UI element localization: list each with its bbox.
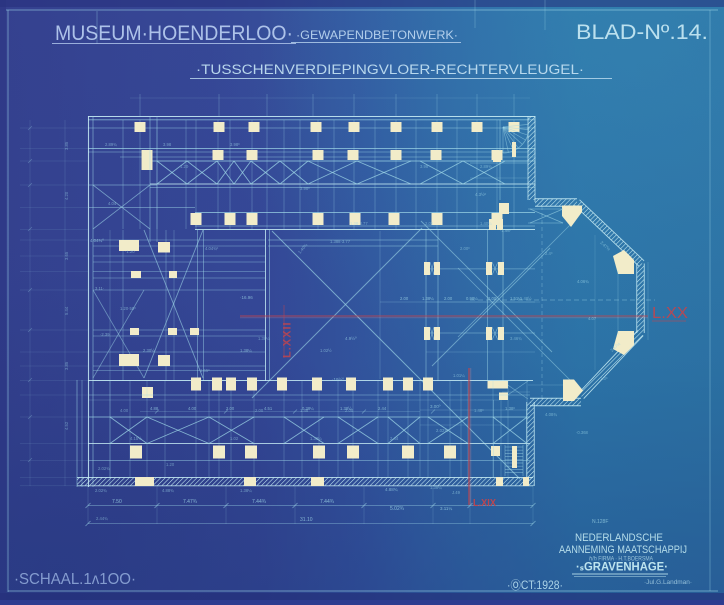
- svg-text:4.88¾: 4.88¾: [385, 487, 398, 492]
- svg-text:1.20: 1.20: [166, 462, 175, 467]
- svg-text:4.3½º: 4.3½º: [475, 192, 487, 197]
- svg-text:2.89¾: 2.89¾: [105, 142, 117, 147]
- svg-text:4.88: 4.88: [150, 406, 159, 411]
- svg-text:4.00: 4.00: [188, 406, 197, 411]
- svg-text:2.02¾: 2.02¾: [98, 466, 110, 471]
- svg-text:2.00: 2.00: [444, 296, 453, 301]
- svg-text:1.38¼: 1.38¼: [258, 336, 270, 341]
- svg-text:3.85: 3.85: [64, 141, 69, 150]
- svg-text:5.44: 5.44: [64, 306, 69, 315]
- svg-text:4.07: 4.07: [588, 316, 597, 321]
- svg-text:3.00º: 3.00º: [430, 404, 441, 409]
- svg-text:4.04¾º: 4.04¾º: [90, 238, 104, 243]
- svg-text:3.11·: 3.11·: [95, 286, 104, 291]
- svg-text:2.44: 2.44: [378, 406, 387, 411]
- svg-text:4.9½º: 4.9½º: [345, 335, 357, 341]
- svg-text:·SCHAAL.1ʌ1OO·: ·SCHAAL.1ʌ1OO·: [14, 571, 136, 588]
- svg-text:1.38¼: 1.38¼: [422, 296, 434, 301]
- svg-text:31.10: 31.10: [300, 517, 313, 523]
- svg-text:0.98¼: 0.98¼: [466, 296, 478, 301]
- svg-text:1.40¾: 1.40¾: [480, 221, 492, 226]
- svg-text:1.48º: 1.48º: [474, 408, 484, 413]
- svg-text:4.15½: 4.15½: [130, 436, 142, 441]
- svg-text:1.38¼: 1.38¼: [240, 488, 252, 493]
- svg-text:BLAD-Nº.14.: BLAD-Nº.14.: [576, 21, 708, 44]
- svg-text:2.02¾: 2.02¾: [95, 488, 107, 493]
- svg-text:4.20: 4.20: [64, 191, 69, 200]
- svg-text:3.98º: 3.98º: [300, 186, 310, 191]
- svg-text:1.02: 1.02: [230, 436, 239, 441]
- svg-text:1.01¼: 1.01¼: [453, 373, 465, 378]
- svg-text:2.44: 2.44: [390, 436, 399, 441]
- svg-text:1.38º: 1.38º: [505, 406, 515, 411]
- svg-text:1.38¼: 1.38¼: [310, 436, 322, 441]
- svg-text:2.00: 2.00: [488, 296, 497, 301]
- svg-text:2.89¾: 2.89¾: [480, 164, 492, 169]
- svg-text:4.51: 4.51: [264, 406, 273, 411]
- svg-text:7.50: 7.50: [112, 499, 122, 505]
- svg-text:1.20·: 1.20·: [180, 164, 190, 169]
- svg-text:4.04: 4.04: [108, 201, 117, 206]
- svg-text:7.44¾: 7.44¾: [252, 499, 267, 505]
- svg-text:2.00: 2.00: [255, 408, 264, 413]
- svg-text:1.02½: 1.02½: [320, 348, 332, 353]
- svg-text:1.3º: 1.3º: [600, 376, 608, 381]
- svg-text:1.38¼: 1.38¼: [430, 485, 442, 490]
- svg-text:2.00: 2.00: [345, 408, 354, 413]
- svg-text:·0.368: ·0.368: [576, 430, 589, 435]
- svg-text:1.388·3.77: 1.388·3.77: [330, 239, 351, 244]
- svg-text:2.02: 2.02: [425, 221, 434, 226]
- svg-text:7.44¾: 7.44¾: [320, 499, 335, 505]
- svg-text:4.00: 4.00: [120, 408, 129, 413]
- svg-text:4.88¾: 4.88¾: [162, 488, 174, 493]
- svg-text:3.98º: 3.98º: [230, 142, 240, 147]
- svg-text:·1.20: ·1.20: [125, 249, 135, 254]
- svg-text:AANNEMING MAATSCHAPPIJ: AANNEMING MAATSCHAPPIJ: [559, 544, 687, 556]
- svg-text:4.06¾: 4.06¾: [577, 279, 589, 284]
- svg-text:·GEWAPENDBETONWERK·: ·GEWAPENDBETONWERK·: [296, 30, 458, 42]
- svg-text:·ₛGRAVENHAGE·: ·ₛGRAVENHAGE·: [576, 562, 668, 574]
- svg-text:MUSEUM·HOENDERLOO·: MUSEUM·HOENDERLOO·: [55, 22, 293, 45]
- svg-text:L.XIX: L.XIX: [473, 498, 496, 509]
- svg-text:3.46¾: 3.46¾: [510, 336, 522, 341]
- svg-text:·1.98·: ·1.98·: [500, 228, 511, 233]
- svg-text:1.38·3.77: 1.38·3.77: [350, 221, 368, 226]
- svg-text:·2.39: ·2.39: [100, 332, 110, 337]
- svg-text:·ⓄCT:1928·: ·ⓄCT:1928·: [507, 579, 563, 592]
- svg-text:2.00: 2.00: [400, 296, 409, 301]
- svg-text:·19½º: ·19½º: [332, 376, 344, 382]
- svg-text:2.4º: 2.4º: [545, 251, 553, 256]
- svg-text:L.XX: L.XX: [652, 305, 688, 322]
- svg-text:4.52: 4.52: [64, 421, 69, 430]
- svg-text:N.128F: N.128F: [592, 519, 608, 525]
- svg-text:3.11¼: 3.11¼: [440, 506, 452, 511]
- svg-text:3.98: 3.98: [420, 164, 429, 169]
- svg-text:2.02¾: 2.02¾: [436, 428, 448, 433]
- svg-text:4.08¾: 4.08¾: [545, 412, 557, 417]
- svg-text:4.04¾º: 4.04¾º: [205, 246, 219, 251]
- svg-text:1.48: 1.48: [300, 408, 309, 413]
- svg-text:L.XXII: L.XXII: [282, 321, 294, 358]
- svg-text:3.98: 3.98: [163, 142, 172, 147]
- svg-text:·TUSSCHENVERDIEPINGVLOER-RECHT: ·TUSSCHENVERDIEPINGVLOER-RECHTERVLEUGEL·: [196, 62, 584, 77]
- svg-text:2.00º: 2.00º: [460, 246, 470, 251]
- svg-text:J.49: J.49: [452, 490, 461, 495]
- svg-text:1.48½: 1.48½: [520, 296, 532, 301]
- svg-text:1.38¼: 1.38¼: [240, 348, 252, 353]
- svg-text:3.85: 3.85: [64, 361, 69, 370]
- svg-text:2.44¾: 2.44¾: [96, 516, 108, 521]
- svg-text:·16.96: ·16.96: [240, 295, 253, 300]
- svg-text:NEDERLANDSCHE: NEDERLANDSCHE: [575, 532, 663, 544]
- svg-text:7.47¾: 7.47¾: [183, 499, 198, 505]
- svg-text:5.02¾: 5.02¾: [390, 506, 405, 512]
- svg-text:1.20·50º: 1.20·50º: [120, 306, 136, 311]
- svg-text:1.55º: 1.55º: [200, 368, 210, 373]
- svg-text:·Jul.G.Landman·: ·Jul.G.Landman·: [644, 579, 692, 586]
- svg-text:2.30½: 2.30½: [143, 348, 155, 353]
- svg-text:3.65: 3.65: [64, 251, 69, 260]
